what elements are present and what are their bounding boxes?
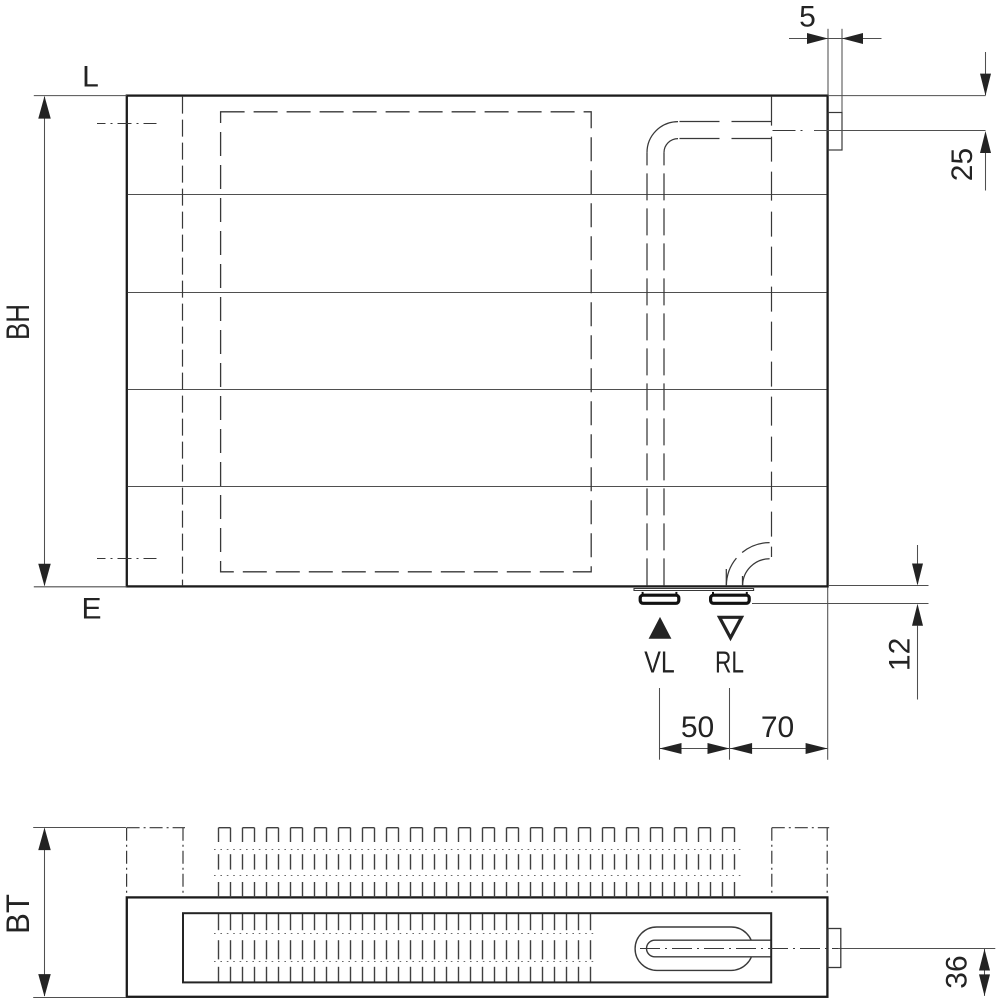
- svg-text:L: L: [82, 60, 99, 93]
- svg-text:BT: BT: [0, 894, 36, 934]
- svg-text:70: 70: [761, 711, 794, 744]
- svg-text:RL: RL: [715, 644, 744, 679]
- svg-text:25: 25: [946, 148, 979, 181]
- svg-text:50: 50: [681, 711, 714, 744]
- svg-text:E: E: [81, 593, 101, 626]
- svg-text:5: 5: [799, 1, 816, 34]
- svg-text:36: 36: [941, 955, 974, 988]
- svg-text:12: 12: [884, 638, 917, 671]
- svg-text:VL: VL: [644, 644, 675, 679]
- svg-text:BH: BH: [0, 304, 36, 340]
